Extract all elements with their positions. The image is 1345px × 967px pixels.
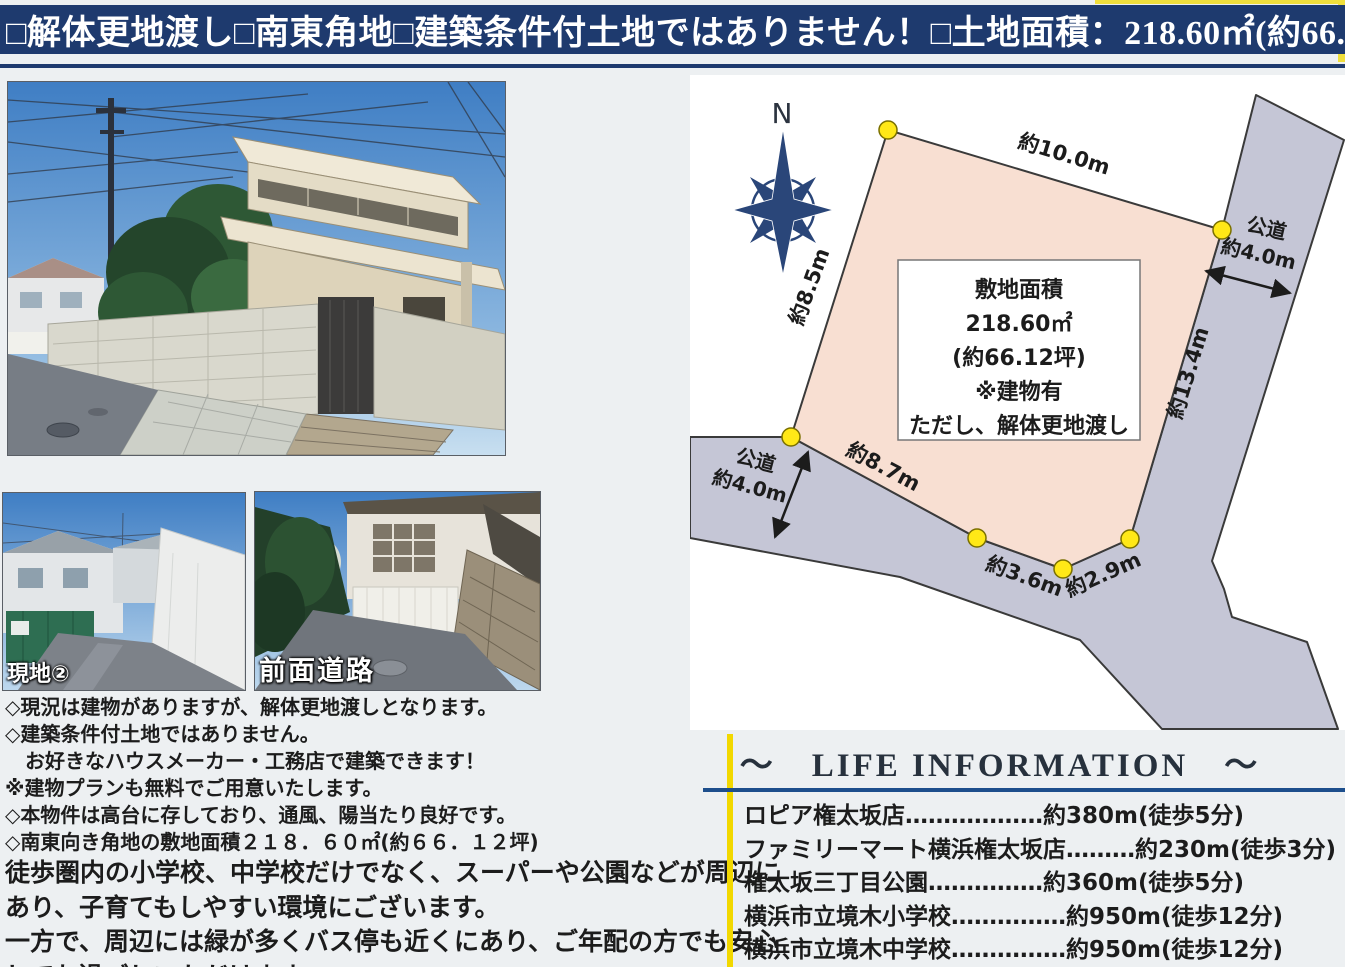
fence-sign — [11, 621, 29, 635]
photo-front-road: 前面道路 — [255, 492, 540, 690]
gate — [318, 297, 374, 414]
site-area-note2: ただし、解体更地渡し — [909, 413, 1129, 439]
life-information-section: ～ LIFE INFORMATION ～ ロピア権太坂店………………約380m(… — [700, 730, 1345, 967]
life-divider-line — [703, 788, 1345, 792]
site-area-sqm: 218.60㎡ — [966, 311, 1073, 337]
site-area-note1: ※建物有 — [975, 379, 1062, 405]
photo-site2: 現地② — [3, 493, 245, 690]
banner-item-land-area: □土地面積：218.60㎡(約66.12坪) — [931, 5, 1345, 54]
plot-diagram: N 約10.0m 約8.5m 約13.4m 約8.7m 約3.6m 約2.9m … — [690, 75, 1345, 730]
photo-site2-label: 現地② — [7, 656, 70, 688]
note-line: ※建物プランも無料でご用意いたします。 — [5, 775, 690, 802]
note-line: あり、子育てもしやすい環境にございます。 — [5, 891, 690, 926]
banner-divider-line — [0, 64, 1345, 68]
plot-diagram-svg: N 約10.0m 約8.5m 約13.4m 約8.7m 約3.6m 約2.9m … — [690, 75, 1345, 730]
photo-front-road-label: 前面道路 — [259, 649, 375, 688]
note-line: 徒歩圏内の小学校、中学校だけでなく、スーパーや公園などが周辺に — [5, 856, 690, 891]
note-line: ◇現況は建物がありますが、解体更地渡しとなります。 — [5, 694, 690, 721]
vertex-marker — [879, 121, 897, 139]
note-line: ◇南東向き角地の敷地面積２１８．６０㎡(約６６．１２坪) — [5, 829, 690, 856]
life-item-convenience: ファミリーマート横浜権太坂店………約230m(徒歩3分) — [744, 834, 1336, 868]
life-items-list: ロピア権太坂店………………約380m(徒歩5分) ファミリーマート横浜権太坂店…… — [744, 800, 1336, 967]
life-item-supermarket: ロピア権太坂店………………約380m(徒歩5分) — [744, 800, 1336, 834]
property-notes: ◇現況は建物がありますが、解体更地渡しとなります。 ◇建築条件付土地ではありませ… — [5, 694, 690, 967]
header-banner: □解体更地渡し □南東角地 □建築条件付土地ではありません！ □土地面積：218… — [0, 5, 1345, 54]
compass-north-label: N — [772, 97, 793, 130]
site-area-tsubo: (約66.12坪) — [952, 345, 1086, 371]
banner-item-corner-lot: □南東角地 — [234, 5, 393, 54]
flyer-page: □解体更地渡し □南東角地 □建築条件付土地ではありません！ □土地面積：218… — [0, 0, 1345, 967]
scan-edge-yellow-top — [1095, 0, 1345, 4]
banner-item-no-conditions: □建築条件付土地ではありません！ — [393, 5, 931, 54]
life-title: ～ LIFE INFORMATION ～ — [700, 738, 1300, 786]
banner-item-demolition: □解体更地渡し — [6, 5, 234, 54]
vertex-marker — [1121, 530, 1139, 548]
photo-main-exterior — [8, 82, 505, 455]
photo-main-scene — [8, 82, 505, 455]
note-line: お好きなハウスメーカー・工務店で建築できます！ — [5, 748, 690, 775]
note-line: ◇本物件は高台に存しており、通風、陽当たり良好です。 — [5, 802, 690, 829]
note-line: 一方で、周辺には緑が多くバス停も近くにあり、ご年配の方でも安心 — [5, 925, 690, 960]
site-area-box: 敷地面積 218.60㎡ (約66.12坪) ※建物有 ただし、解体更地渡し — [898, 260, 1140, 440]
site-area-title: 敷地面積 — [975, 277, 1064, 303]
note-line: ◇建築条件付土地ではありません。 — [5, 721, 690, 748]
vertex-marker — [782, 428, 800, 446]
life-item-elementary: 横浜市立境木小学校……………約950m(徒歩12分) — [744, 901, 1336, 935]
life-item-juniorhigh: 横浜市立境木中学校……………約950m(徒歩12分) — [744, 934, 1336, 967]
edge-label-left: 約8.5m — [784, 245, 834, 328]
life-item-park: 権太坂三丁目公園……………約360m(徒歩5分) — [744, 867, 1336, 901]
vertex-marker — [968, 529, 986, 547]
note-line: してお過ごしいただけます。 — [5, 960, 690, 967]
